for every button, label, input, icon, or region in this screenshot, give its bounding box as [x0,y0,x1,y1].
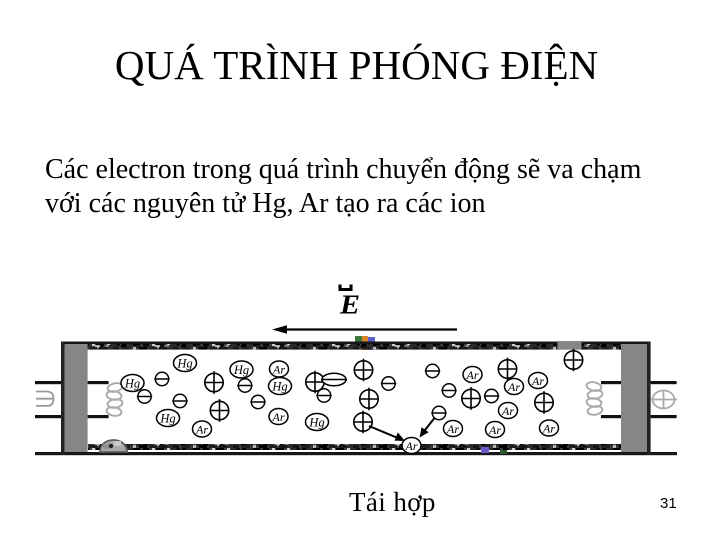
svg-text:Ar: Ar [272,410,285,424]
svg-text:Ar: Ar [542,422,555,436]
svg-text:Ar: Ar [501,404,514,418]
svg-text:Ar: Ar [488,423,501,437]
svg-text:Hg: Hg [271,380,287,394]
svg-text:Hg: Hg [176,357,192,371]
svg-text:Ar: Ar [531,374,544,388]
svg-text:E: E [339,290,360,320]
svg-text:Hg: Hg [233,363,249,377]
svg-text:Ar: Ar [272,363,285,377]
svg-text:Ar: Ar [507,380,520,394]
svg-text:Ar: Ar [466,368,479,382]
svg-text:Ar: Ar [446,422,459,436]
svg-text:Hg: Hg [124,377,140,391]
svg-text:Ar: Ar [405,439,418,453]
svg-text:Hg: Hg [308,416,324,430]
svg-text:Hg: Hg [159,412,175,426]
svg-text:Ar: Ar [195,423,208,437]
